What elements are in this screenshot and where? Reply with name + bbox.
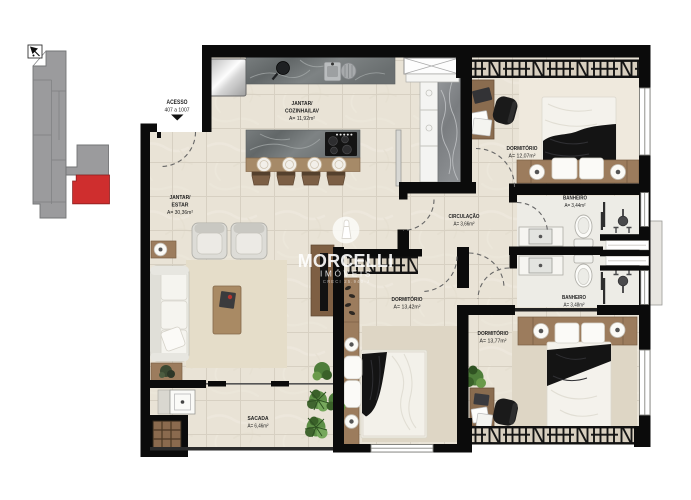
svg-text:A= 3,48m²: A= 3,48m²: [564, 303, 585, 309]
svg-text:JANTAR/: JANTAR/: [292, 101, 313, 107]
svg-text:407 a 1007: 407 a 1007: [165, 108, 190, 114]
svg-text:ACESSO: ACESSO: [167, 100, 188, 106]
svg-text:COZINHA/LAV: COZINHA/LAV: [285, 109, 319, 115]
svg-text:A= 3,66m²: A= 3,66m²: [454, 222, 475, 228]
svg-text:CIRCULAÇÃO: CIRCULAÇÃO: [449, 213, 481, 220]
svg-text:BANHEIRO: BANHEIRO: [563, 196, 588, 202]
svg-text:A= 30,36m²: A= 30,36m²: [167, 210, 193, 216]
svg-text:CRECI 25.940-J: CRECI 25.940-J: [323, 279, 370, 284]
svg-text:A= 11,92m²: A= 11,92m²: [289, 116, 315, 122]
svg-text:A= 3,44m²: A= 3,44m²: [565, 203, 586, 209]
svg-text:A= 6,46m²: A= 6,46m²: [248, 424, 269, 430]
svg-text:A= 12,07m²: A= 12,07m²: [509, 154, 536, 160]
svg-text:ESTAR: ESTAR: [172, 203, 189, 209]
svg-text:A= 13,42m²: A= 13,42m²: [394, 305, 421, 311]
svg-text:DORMITÓRIO: DORMITÓRIO: [392, 295, 424, 303]
svg-text:SACADA: SACADA: [248, 416, 269, 422]
svg-text:DORMITÓRIO: DORMITÓRIO: [507, 144, 539, 152]
svg-text:A= 13,77m²: A= 13,77m²: [480, 339, 507, 345]
svg-text:IMÓVEIS: IMÓVEIS: [320, 269, 373, 279]
svg-text:JANTAR/: JANTAR/: [170, 195, 191, 201]
svg-text:BANHEIRO: BANHEIRO: [562, 295, 587, 301]
svg-text:DORMITÓRIO: DORMITÓRIO: [478, 329, 510, 337]
